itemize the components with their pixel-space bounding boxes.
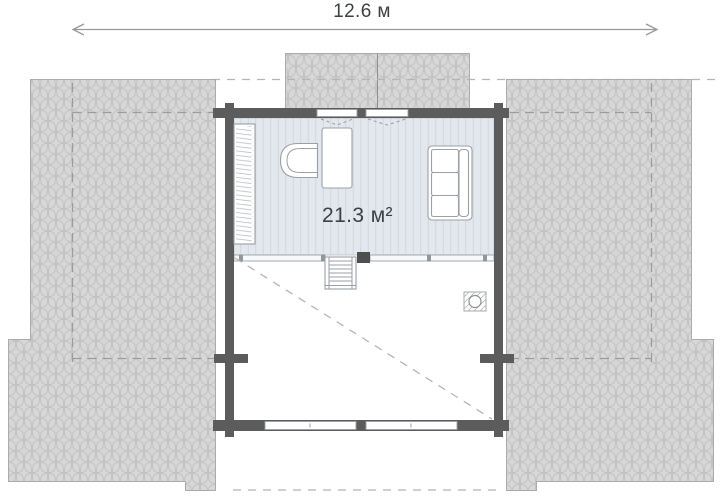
floor-plan-drawing	[0, 0, 722, 502]
dormer-roof-icon	[286, 54, 470, 109]
chimney-icon	[464, 292, 486, 311]
wardrobe-icon	[234, 124, 255, 244]
void-opening-diagonal	[235, 258, 492, 419]
right-roof-slope-icon	[507, 80, 714, 491]
dimension-label: 12.6 м	[262, 1, 462, 23]
sofa-icon	[428, 146, 472, 220]
floor-plan-canvas: 12.6 м 21.3 м²	[0, 0, 722, 502]
left-roof-slope-icon	[9, 80, 216, 491]
right-beam-joint	[480, 354, 514, 363]
desk-icon	[322, 128, 352, 188]
window-icon	[317, 110, 357, 117]
window-icon	[366, 110, 408, 117]
dimension-line	[73, 24, 657, 35]
bottom-wall	[213, 420, 509, 431]
top-wall	[213, 108, 509, 118]
left-beam-joint	[214, 354, 248, 363]
staircase-icon	[325, 257, 356, 289]
left-wall	[225, 103, 234, 437]
right-wall	[494, 103, 503, 437]
armchair-icon	[281, 144, 318, 178]
room-area-label: 21.3 м²	[322, 204, 393, 228]
